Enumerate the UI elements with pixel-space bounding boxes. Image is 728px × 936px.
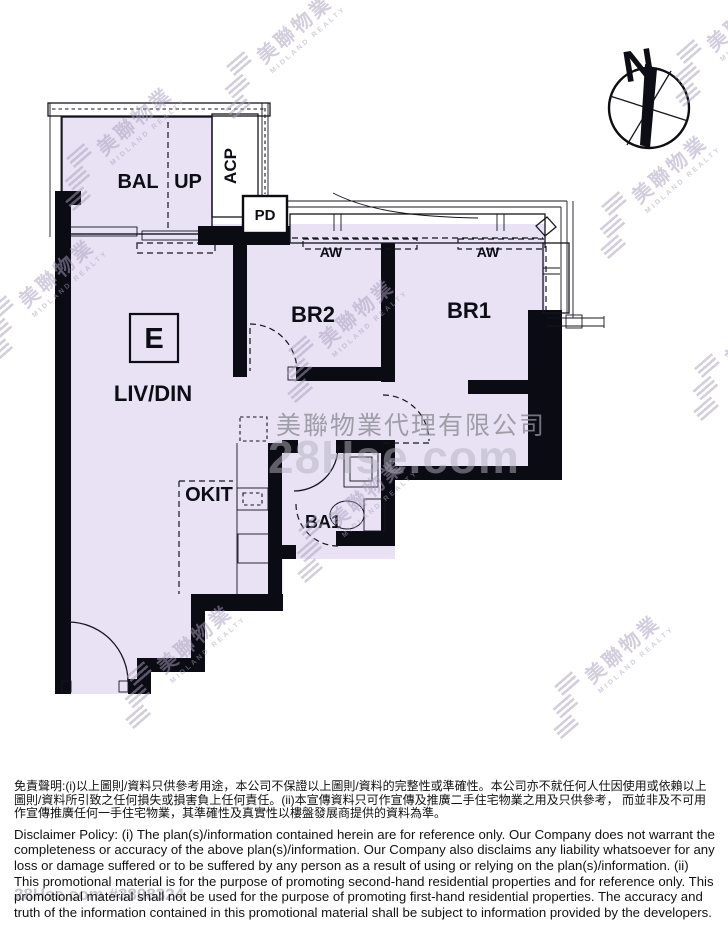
window-label-aw-br2: AW xyxy=(320,244,343,260)
room-label-pd: PD xyxy=(255,207,276,224)
room-label-okit: OKIT xyxy=(185,484,233,506)
disclaimer-block: 免責聲明:(i)以上圖則/資料只供參考用途，本公司不保證以上圖則/資料的完整性或… xyxy=(14,780,715,920)
window-label-aw-br1: AW xyxy=(477,244,500,260)
disclaimer-zh: 免責聲明:(i)以上圖則/資料只供參考用途，本公司不保證以上圖則/資料的完整性或… xyxy=(14,780,715,821)
compass-north-letter: N xyxy=(619,39,658,92)
unit-mark-letter: E xyxy=(144,323,163,355)
room-label-up: UP xyxy=(174,171,202,193)
room-label-br2: BR2 xyxy=(291,302,335,327)
floorplan-page: BAL UP ACP PD AW AW BR2 BR1 E LIV/DIN OK… xyxy=(0,0,728,936)
room-label-ba1: BA1 xyxy=(305,512,341,532)
compass-north: N xyxy=(609,39,689,148)
disclaimer-en: Disclaimer Policy: (i) The plan(s)/infor… xyxy=(14,827,715,921)
floor-plan: BAL UP ACP PD AW AW BR2 BR1 E LIV/DIN OK… xyxy=(0,0,728,775)
room-label-bal: BAL xyxy=(117,171,158,193)
room-label-livdin: LIV/DIN xyxy=(114,381,192,406)
room-label-acp: ACP xyxy=(221,148,240,184)
room-label-br1: BR1 xyxy=(447,298,491,323)
